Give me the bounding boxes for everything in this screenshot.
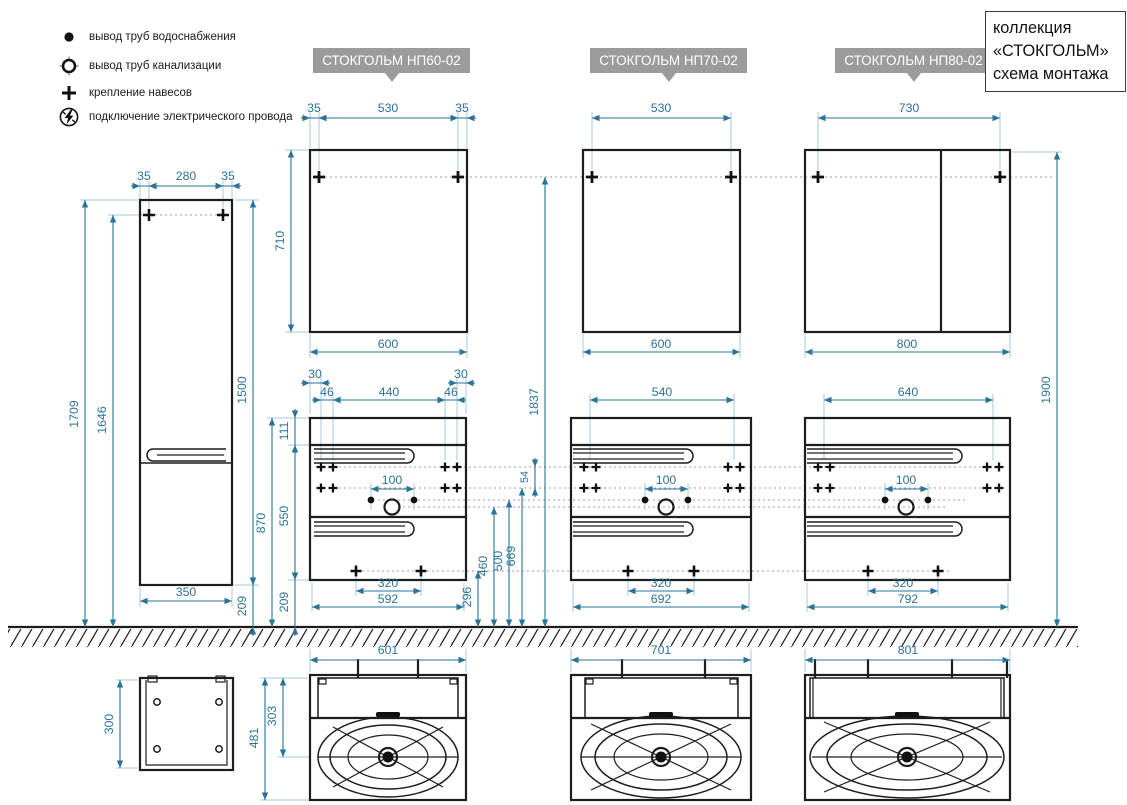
dim-v60-lower-height: 550 bbox=[277, 506, 291, 527]
legend-label: вывод труб канализации bbox=[89, 60, 221, 72]
mirror-cabinet-60 bbox=[310, 150, 467, 332]
dim-v60-edge-left: 30 bbox=[308, 367, 322, 381]
dim-tall-mount-height: 1646 bbox=[95, 406, 109, 434]
dim-m60-offset-left: 35 bbox=[307, 101, 321, 115]
dim-tap-spacing-80: 100 bbox=[896, 473, 917, 487]
product-label-np70: СТОКГОЛЬМ НП70-02 bbox=[590, 48, 747, 73]
basin-70-top-view bbox=[571, 659, 751, 800]
dim-tall-top-center: 280 bbox=[176, 169, 197, 183]
dim-m70-width: 600 bbox=[651, 337, 672, 351]
legend-label: подключение электрического провода bbox=[89, 111, 293, 123]
dim-tall-top-left: 35 bbox=[137, 169, 151, 183]
dimension-labels: 35 280 35 350 35 530 35 530 730 600 600 … bbox=[67, 101, 1053, 748]
dim-v80-width: 801 bbox=[898, 643, 919, 657]
product-name: СТОКГОЛЬМ НП60-02 bbox=[322, 53, 461, 68]
tall-cabinet-top-view bbox=[140, 676, 233, 770]
basin-60-top-view bbox=[310, 659, 466, 800]
dim-m80-width: 800 bbox=[897, 337, 918, 351]
dim-m60-mount-span: 530 bbox=[378, 101, 399, 115]
dim-tall-total-height: 1709 bbox=[67, 400, 81, 428]
dim-m60-height: 710 bbox=[273, 231, 287, 252]
dim-bracket-height: 669 bbox=[504, 546, 518, 567]
product-label-np80: СТОКГОЛЬМ НП80-02 bbox=[835, 48, 992, 73]
dim-m60-offset-right: 35 bbox=[455, 101, 469, 115]
dim-v70-mount-span: 540 bbox=[652, 385, 673, 399]
title-line-name: «СТОКГОЛЬМ» bbox=[993, 40, 1125, 63]
dim-tall-depth: 300 bbox=[102, 714, 116, 735]
dim-mirror-top-height: 1900 bbox=[1039, 376, 1053, 404]
dim-tall-floor-gap: 209 bbox=[235, 596, 249, 617]
dim-basin-drain-offset: 303 bbox=[265, 706, 279, 727]
sewage-pipe-icon bbox=[58, 55, 80, 77]
dim-v60-width: 601 bbox=[378, 643, 399, 657]
dim-legs-height: 296 bbox=[460, 587, 474, 608]
title-line-collection: коллекция bbox=[993, 17, 1125, 40]
dim-tap-spacing-60: 100 bbox=[382, 473, 403, 487]
title-block: коллекция «СТОКГОЛЬМ» схема монтажа bbox=[985, 11, 1126, 92]
dim-v70-width: 701 bbox=[651, 643, 672, 657]
dim-leg-span-60: 320 bbox=[378, 576, 399, 590]
legend-label: вывод труб водоснабжения bbox=[89, 31, 236, 43]
dim-v70-body-width: 692 bbox=[651, 592, 672, 606]
dim-v60-body-width: 592 bbox=[378, 592, 399, 606]
product-name: СТОКГОЛЬМ НП70-02 bbox=[599, 53, 738, 68]
legend-item-hanger-mount: крепление навесов bbox=[58, 82, 192, 104]
dim-mirror-mount-height: 1837 bbox=[527, 388, 541, 416]
legend-item-sewage: вывод труб канализации bbox=[58, 55, 221, 77]
small-dimension-lines bbox=[131, 118, 535, 636]
dim-water-height: 500 bbox=[491, 551, 505, 572]
dim-v60-top-band: 111 bbox=[277, 421, 291, 440]
dim-tap-spacing-70: 100 bbox=[656, 473, 677, 487]
hanger-mount-icon bbox=[58, 82, 80, 104]
water-supply-icon bbox=[58, 26, 80, 48]
legend-label: крепление навесов bbox=[89, 87, 192, 99]
product-name: СТОКГОЛЬМ НП80-02 bbox=[844, 53, 983, 68]
dim-v60-bracket-left: 46 bbox=[320, 385, 334, 399]
dim-tall-width: 350 bbox=[176, 585, 197, 599]
dim-v60-front-height: 870 bbox=[254, 513, 268, 534]
mirror-mount-reference-line bbox=[155, 177, 1052, 215]
dim-v80-mount-span: 640 bbox=[898, 385, 919, 399]
dim-v80-body-width: 792 bbox=[898, 592, 919, 606]
tall-cabinet-front-view bbox=[140, 200, 232, 585]
dim-v60-edge-right: 30 bbox=[454, 367, 468, 381]
dim-v60-floor-gap: 209 bbox=[277, 592, 291, 613]
legend-item-water-supply: вывод труб водоснабжения bbox=[58, 26, 236, 48]
dim-tall-body-height: 1500 bbox=[235, 376, 249, 404]
dim-leg-span-80: 320 bbox=[893, 576, 914, 590]
montage-scheme-page: 35 280 35 350 35 530 35 530 730 600 600 … bbox=[0, 0, 1127, 805]
electric-wire-icon bbox=[58, 106, 80, 128]
title-line-scheme: схема монтажа bbox=[993, 63, 1125, 86]
dim-m80-mount-span: 730 bbox=[899, 101, 920, 115]
dim-m70-mount-span: 530 bbox=[651, 101, 672, 115]
dim-v60-mount-span: 440 bbox=[379, 385, 400, 399]
legend-item-electric: подключение электрического провода bbox=[58, 106, 293, 128]
dim-tall-top-right: 35 bbox=[221, 169, 235, 183]
dim-leg-span-70: 320 bbox=[651, 576, 672, 590]
dim-basin-depth: 481 bbox=[247, 728, 261, 749]
dim-bracket-row-gap: 54 bbox=[519, 471, 531, 483]
dim-drain-height: 460 bbox=[476, 556, 490, 577]
vanity-70-front-view bbox=[571, 418, 751, 580]
dim-v60-bracket-right: 46 bbox=[444, 385, 458, 399]
product-label-np60: СТОКГОЛЬМ НП60-02 bbox=[313, 48, 470, 73]
dim-m60-width: 600 bbox=[378, 337, 399, 351]
basin-80-top-view bbox=[805, 659, 1010, 800]
